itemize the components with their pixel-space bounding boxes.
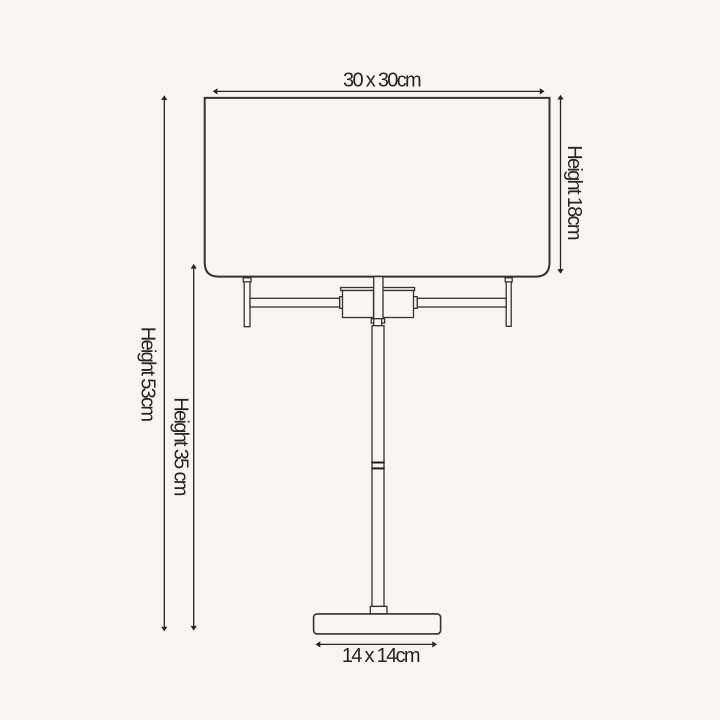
svg-text:Height 53cm: Height 53cm — [137, 327, 159, 422]
svg-text:30 x 30cm: 30 x 30cm — [343, 69, 421, 91]
svg-text:Height 18cm: Height 18cm — [563, 145, 585, 240]
svg-text:14 x 14cm: 14 x 14cm — [342, 645, 420, 667]
svg-text:Height 35 cm: Height 35 cm — [170, 397, 192, 495]
